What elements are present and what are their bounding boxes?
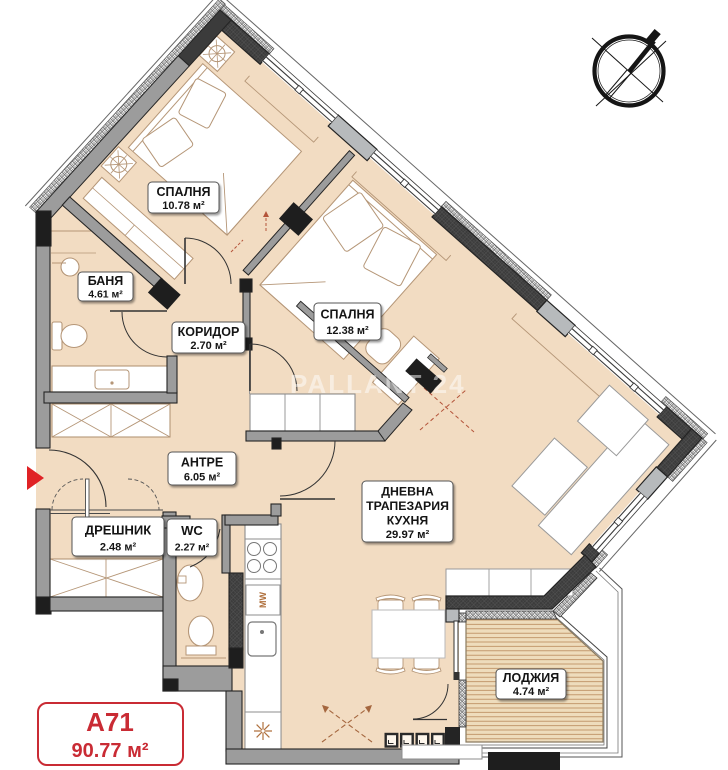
svg-text:WC: WC — [181, 523, 203, 538]
svg-text:ДНЕВНА: ДНЕВНА — [381, 485, 434, 499]
svg-text:СПАЛНЯ: СПАЛНЯ — [157, 185, 211, 199]
svg-text:4.61 м²: 4.61 м² — [88, 289, 123, 301]
svg-text:10.78 м²: 10.78 м² — [162, 200, 205, 212]
svg-text:КУХНЯ: КУХНЯ — [387, 514, 429, 528]
svg-text:29.97 м²: 29.97 м² — [386, 529, 430, 541]
svg-text:2.27 м²: 2.27 м² — [175, 542, 210, 554]
svg-text:12.38 м²: 12.38 м² — [326, 325, 369, 337]
svg-text:ЛОДЖИЯ: ЛОДЖИЯ — [503, 671, 560, 685]
svg-text:КОРИДОР: КОРИДОР — [178, 325, 240, 339]
svg-text:ТРАПЕЗАРИЯ: ТРАПЕЗАРИЯ — [366, 499, 449, 513]
svg-text:СПАЛНЯ: СПАЛНЯ — [321, 308, 375, 322]
svg-text:БАНЯ: БАНЯ — [88, 274, 124, 288]
svg-text:АНТРЕ: АНТРЕ — [181, 456, 223, 470]
svg-text:2.48 м²: 2.48 м² — [100, 542, 137, 554]
svg-text:4.74 м²: 4.74 м² — [513, 686, 550, 698]
svg-text:2.70 м²: 2.70 м² — [190, 340, 227, 352]
svg-text:А71: А71 — [86, 707, 134, 737]
svg-text:ДРЕШНИК: ДРЕШНИК — [85, 523, 151, 538]
svg-text:6.05 м²: 6.05 м² — [184, 472, 221, 484]
svg-text:MW: MW — [258, 592, 268, 608]
svg-text:90.77 м²: 90.77 м² — [71, 740, 148, 762]
svg-text:PALLANT 24: PALLANT 24 — [290, 369, 466, 399]
